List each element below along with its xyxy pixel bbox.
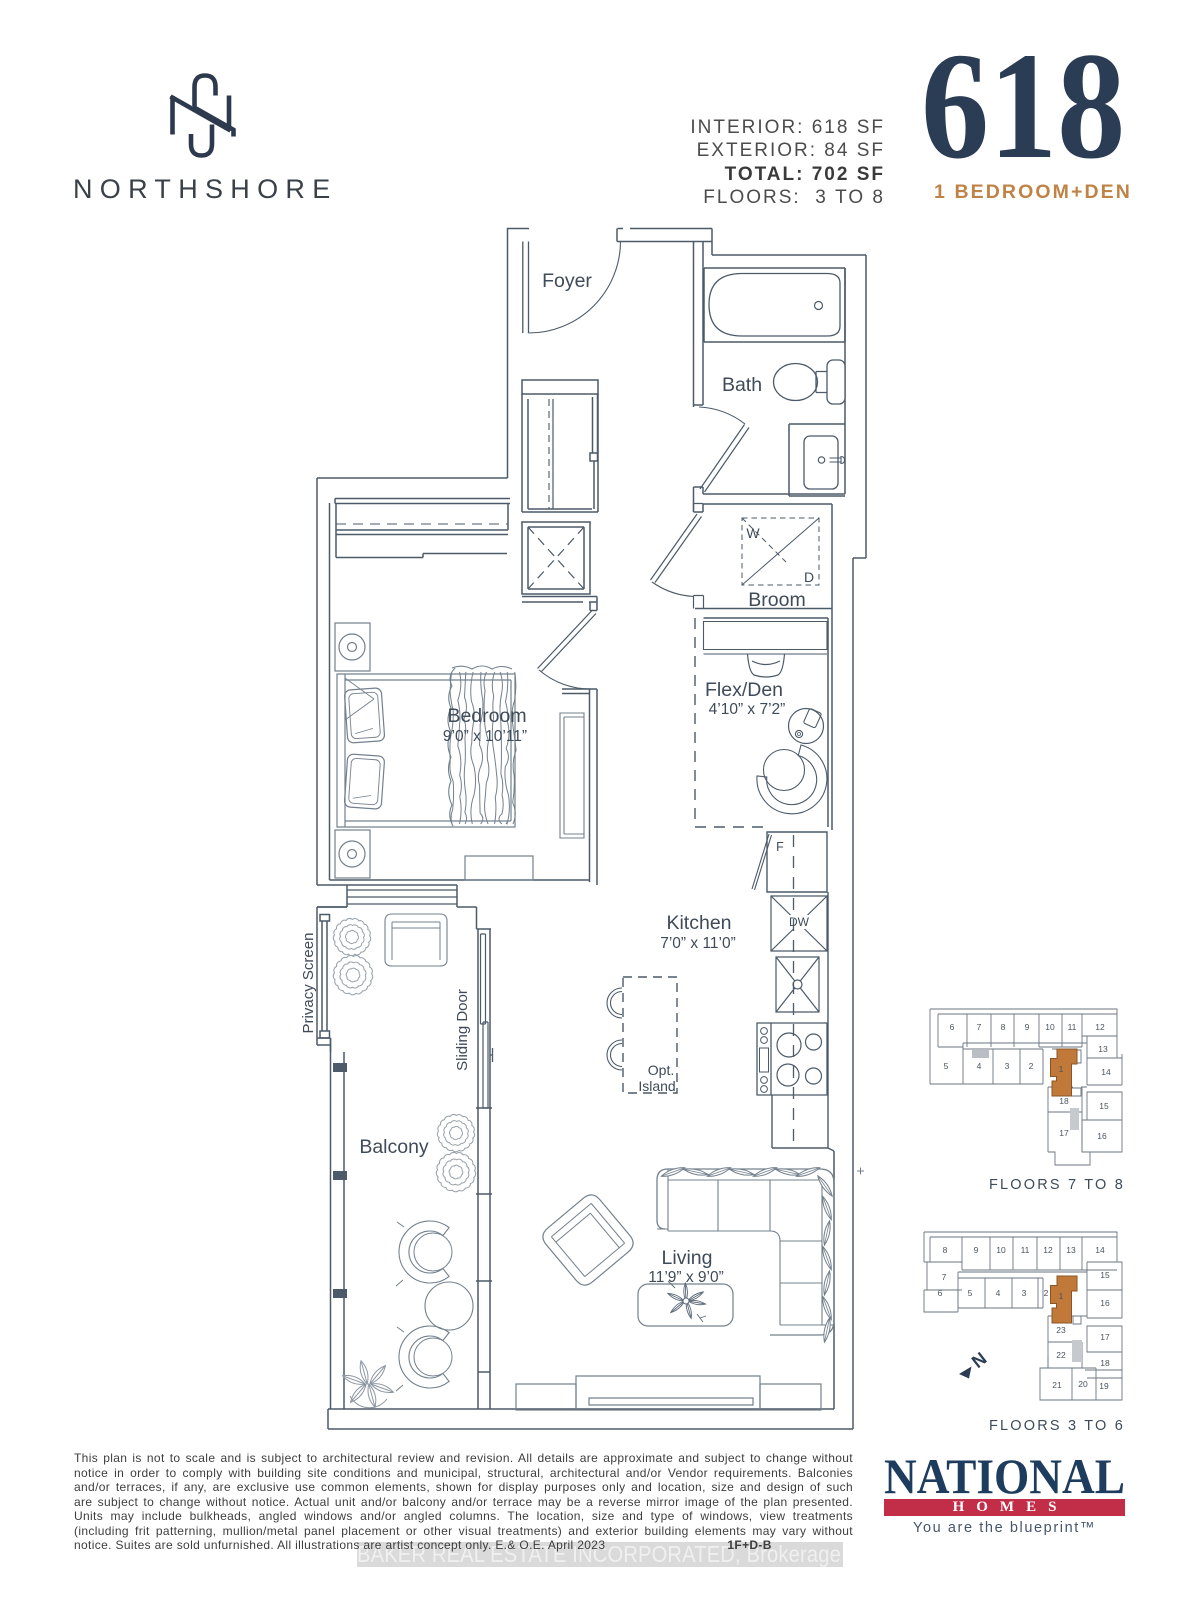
svg-text:Bedroom: Bedroom (447, 705, 526, 727)
svg-text:6: 6 (938, 1288, 943, 1298)
svg-text:Foyer: Foyer (542, 270, 592, 292)
svg-text:17: 17 (1100, 1332, 1110, 1342)
svg-text:Broom: Broom (748, 589, 805, 611)
svg-text:DW: DW (789, 915, 810, 929)
svg-text:15: 15 (1099, 1101, 1109, 1111)
svg-text:Bath: Bath (722, 374, 762, 396)
svg-text:18: 18 (1059, 1096, 1069, 1106)
svg-text:11’9” x 9’0”: 11’9” x 9’0” (648, 1269, 724, 1286)
svg-text:10: 10 (996, 1245, 1006, 1255)
svg-text:2: 2 (1029, 1061, 1034, 1071)
svg-text:12: 12 (1043, 1245, 1053, 1255)
svg-text:7’0” x 11’0”: 7’0” x 11’0” (660, 935, 736, 952)
svg-text:8: 8 (1001, 1022, 1006, 1032)
svg-text:2: 2 (1044, 1288, 1049, 1298)
svg-text:17: 17 (1059, 1128, 1069, 1138)
svg-text:Privacy Screen: Privacy Screen (300, 933, 317, 1034)
svg-text:7: 7 (977, 1022, 982, 1032)
svg-text:FLOORS 3 TO 6: FLOORS 3 TO 6 (989, 1418, 1125, 1434)
svg-text:9’0” x 10’11”: 9’0” x 10’11” (443, 728, 527, 745)
svg-text:Opt.: Opt. (648, 1062, 674, 1078)
svg-text:FLOORS 7 TO 8: FLOORS 7 TO 8 (989, 1177, 1125, 1193)
svg-text:13: 13 (1066, 1245, 1076, 1255)
svg-text:Living: Living (662, 1247, 713, 1269)
svg-text:11: 11 (1021, 1245, 1030, 1255)
svg-text:4’10” x 7’2”: 4’10” x 7’2” (709, 701, 786, 718)
svg-text:5: 5 (944, 1061, 949, 1071)
svg-text:D: D (804, 569, 814, 585)
svg-text:5: 5 (968, 1288, 973, 1298)
svg-text:9: 9 (974, 1245, 979, 1255)
svg-text:21: 21 (1052, 1380, 1062, 1390)
svg-text:Balcony: Balcony (359, 1136, 429, 1158)
svg-text:22: 22 (1056, 1350, 1066, 1360)
svg-text:4: 4 (996, 1288, 1001, 1298)
svg-text:Island: Island (638, 1078, 675, 1094)
svg-text:15: 15 (1100, 1270, 1110, 1280)
svg-text:14: 14 (1101, 1067, 1111, 1077)
svg-text:19: 19 (1099, 1381, 1109, 1391)
svg-text:Kitchen: Kitchen (666, 912, 731, 934)
svg-text:12: 12 (1095, 1022, 1105, 1032)
svg-text:N: N (968, 1348, 991, 1372)
svg-text:1: 1 (1059, 1064, 1064, 1074)
svg-text:23: 23 (1056, 1325, 1066, 1335)
svg-text:3: 3 (1022, 1288, 1027, 1298)
svg-text:18: 18 (1100, 1358, 1110, 1368)
svg-text:Flex/Den: Flex/Den (705, 679, 783, 701)
svg-text:1: 1 (1059, 1291, 1064, 1301)
svg-text:16: 16 (1100, 1298, 1110, 1308)
svg-text:20: 20 (1078, 1379, 1088, 1389)
svg-text:3: 3 (1005, 1061, 1010, 1071)
svg-text:4: 4 (977, 1061, 982, 1071)
svg-text:6: 6 (950, 1022, 955, 1032)
svg-text:13: 13 (1098, 1044, 1108, 1054)
svg-text:Sliding Door: Sliding Door (454, 989, 471, 1071)
svg-text:8: 8 (943, 1245, 948, 1255)
svg-text:F: F (776, 840, 784, 854)
svg-text:7: 7 (942, 1272, 947, 1282)
svg-text:14: 14 (1095, 1245, 1105, 1255)
svg-text:16: 16 (1097, 1131, 1107, 1141)
svg-text:11: 11 (1068, 1022, 1077, 1032)
svg-text:10: 10 (1045, 1022, 1055, 1032)
svg-text:9: 9 (1025, 1022, 1030, 1032)
svg-text:W: W (746, 525, 760, 541)
